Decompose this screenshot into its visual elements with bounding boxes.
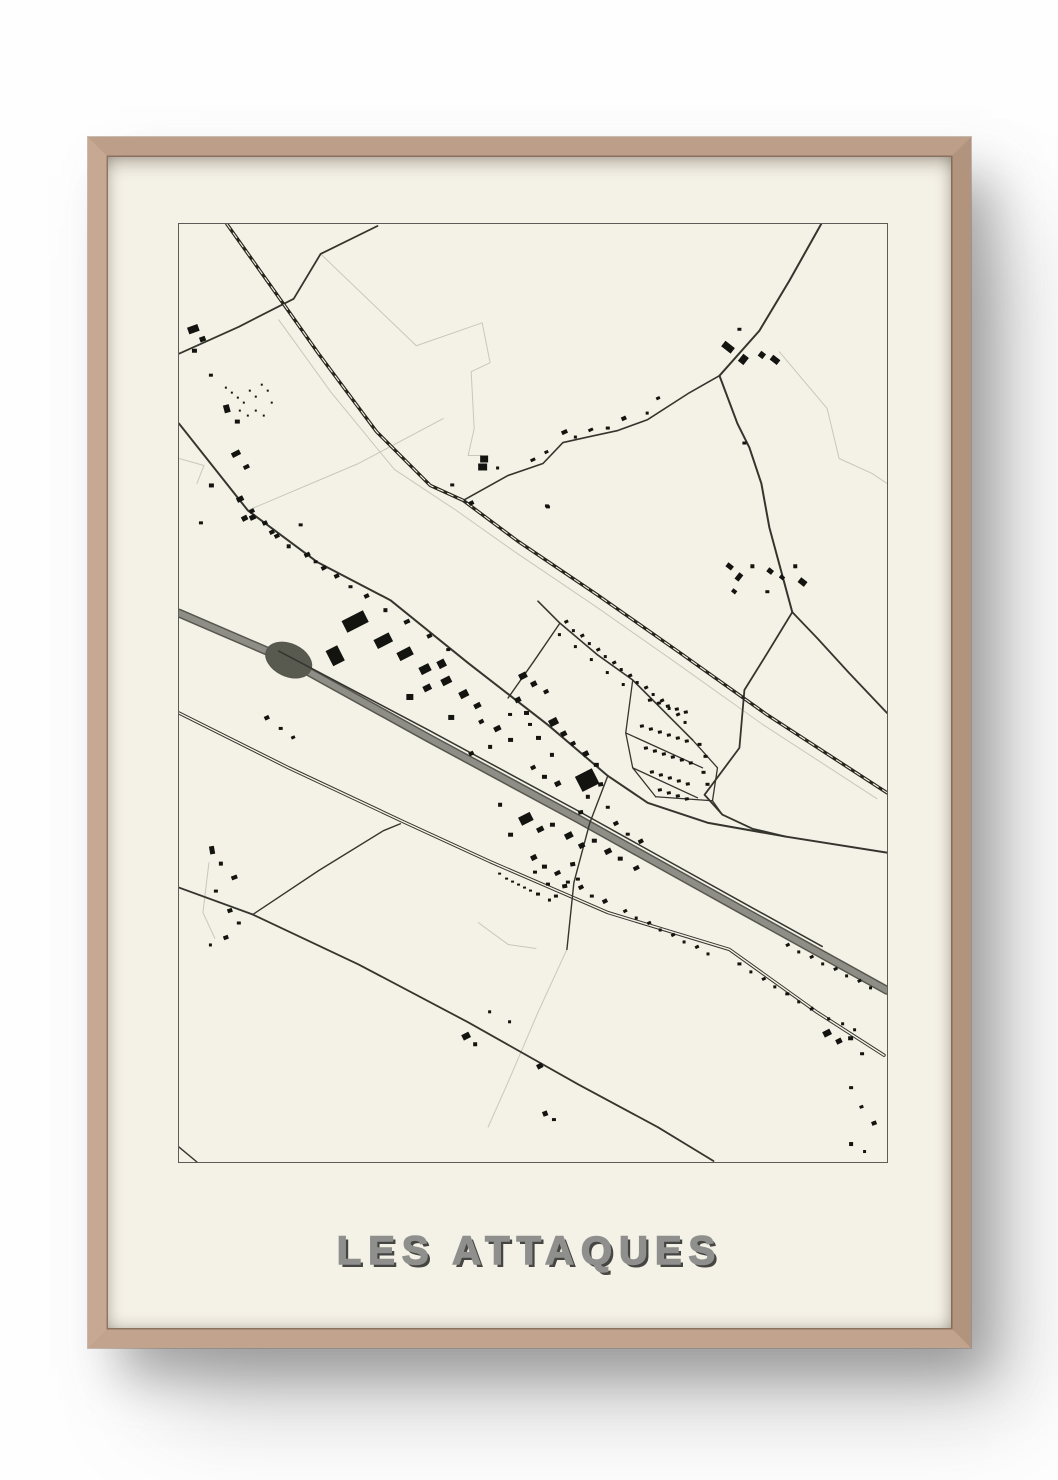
road [179,226,377,354]
building [530,680,538,687]
building [440,675,452,686]
building [562,884,568,889]
building [580,633,585,637]
railway [227,224,887,793]
building [725,562,734,570]
building [458,689,469,699]
building [508,738,513,742]
building [586,795,590,799]
building [406,694,413,700]
map-svg [179,224,887,1162]
building [606,806,610,809]
building [255,396,257,398]
building [649,727,653,731]
building [349,585,353,588]
building [735,572,744,581]
building [403,619,410,625]
building [529,890,532,892]
wall: LES ATTAQUES [0,0,1058,1480]
building [742,442,746,445]
building [243,464,250,470]
building [498,803,502,807]
building [231,449,241,458]
building [622,683,625,686]
building [613,820,619,826]
building [530,457,536,462]
building [192,349,197,353]
building [821,962,824,965]
building [473,1042,477,1046]
poster: LES ATTAQUES [108,157,951,1328]
building [223,935,229,940]
building [493,725,501,733]
building [223,404,231,413]
building [227,908,233,913]
building [676,794,680,798]
building [255,410,257,412]
building [279,727,283,730]
building [542,1110,548,1116]
building [841,1022,844,1025]
building [667,791,671,795]
building [561,429,568,435]
building [214,890,218,893]
building [684,710,688,714]
building [590,895,594,898]
building [650,770,654,774]
building [704,755,708,758]
building [271,402,273,404]
road [719,224,821,376]
building [524,711,529,715]
building [620,668,623,671]
building [261,384,263,386]
building [702,771,706,774]
building [299,523,303,526]
building [676,712,681,716]
building [550,753,554,757]
poster-title: LES ATTAQUES [108,1229,951,1274]
road [693,740,718,801]
field-boundary-line [248,419,443,511]
building [517,884,520,886]
map-container [178,223,888,1163]
building [314,560,318,563]
building [658,788,662,792]
building [545,504,549,507]
building [809,955,814,959]
building [683,940,686,943]
building [594,763,599,767]
building [827,1017,830,1020]
building [758,351,766,359]
building [671,755,675,759]
building [606,671,609,674]
building [658,730,662,734]
building [604,655,607,658]
building [231,875,238,881]
building [648,698,652,702]
building [652,693,655,696]
building [461,1032,471,1041]
road [538,601,693,740]
building [231,392,233,394]
building [450,483,454,486]
building [668,776,672,780]
building [770,355,781,365]
building [247,415,249,417]
building [662,752,666,756]
building [533,871,537,874]
building [685,797,689,801]
building [871,1120,877,1125]
building [869,986,872,989]
building [558,633,561,636]
building [237,922,241,925]
building [582,750,590,757]
road [508,623,560,698]
building [845,974,848,977]
building [518,812,534,826]
building [737,328,741,331]
building [731,588,737,594]
building [750,564,754,568]
building [267,390,269,392]
building [574,645,577,648]
building [239,410,241,412]
building [849,1142,853,1146]
building [209,846,215,855]
building [199,521,203,524]
building [396,646,413,661]
building [623,909,628,913]
building [564,831,574,840]
road [253,915,714,1161]
double-road-casing [179,713,884,1055]
building [241,515,249,522]
building [552,1118,556,1121]
building [243,402,245,404]
building [548,899,551,902]
building [326,645,345,666]
building [633,865,640,871]
building [588,427,594,432]
building [638,838,644,844]
building [721,341,735,354]
building [685,739,689,743]
building [578,810,584,815]
building [707,952,710,955]
building [249,508,255,514]
building [680,758,684,762]
building [749,970,752,973]
building [564,619,569,623]
building [592,839,597,843]
building [505,878,508,880]
building [606,427,610,430]
building [209,374,213,377]
building [859,1105,864,1109]
building [835,1038,843,1045]
building [219,862,223,866]
building [383,608,387,612]
building [646,412,649,415]
building [363,593,369,599]
building [488,745,492,749]
building [598,782,604,787]
railway-dashes [227,224,887,793]
building [822,1029,832,1038]
building [677,779,681,783]
building [550,823,555,827]
building [863,1150,866,1153]
building [342,610,369,632]
building [797,1000,800,1003]
building [264,715,270,721]
building [590,658,593,661]
building [572,629,575,632]
building [566,881,570,884]
building [695,945,700,949]
road [253,824,401,915]
building [570,862,576,867]
road [792,612,887,713]
building [675,707,679,711]
building [640,724,644,728]
building [448,715,454,720]
building [237,397,239,399]
building [418,663,431,675]
road [179,424,887,853]
building [676,736,680,740]
building [656,396,661,400]
building [644,746,648,750]
building [235,420,240,424]
building [635,917,638,920]
building [578,884,584,890]
building [785,943,790,947]
building [446,648,450,651]
building [225,387,227,389]
building [686,782,690,786]
building [536,893,540,896]
building [530,765,536,771]
building [576,878,580,881]
building [249,390,251,392]
building [659,773,663,777]
building [287,544,291,548]
building [659,928,662,931]
building [209,483,214,487]
building [528,723,532,726]
building [793,564,797,568]
building [574,436,577,439]
building [698,743,702,746]
building [575,768,600,792]
building [596,647,601,651]
building [653,749,657,753]
field-boundary-line [478,923,536,949]
building [536,826,544,834]
building [785,992,789,995]
building [523,887,526,889]
road [179,1147,197,1162]
building [848,1036,853,1040]
building [291,735,296,739]
building [511,881,514,883]
building [542,775,547,779]
building [618,857,623,861]
building [514,696,522,703]
field-boundary-line [179,459,204,484]
building [536,736,541,740]
building [860,1052,864,1055]
building [508,713,512,716]
building [508,1020,511,1023]
building [530,854,538,861]
building [612,660,617,664]
building [436,658,447,669]
building [508,833,513,837]
building [667,733,671,737]
building [765,590,769,593]
pond [260,635,317,684]
building [488,1010,491,1013]
building [797,950,800,953]
building [737,962,741,965]
building [554,895,558,898]
building [554,780,562,787]
building [626,833,630,836]
building [706,783,710,786]
building [684,721,687,724]
building [657,701,661,705]
building [602,898,608,904]
field-boundary-line [321,254,491,456]
field-boundary-line [488,949,567,1127]
building [473,702,481,710]
building [849,1086,853,1089]
building [738,354,749,365]
building [773,985,776,988]
building [798,577,808,587]
building [498,873,501,875]
building [478,719,484,725]
building [422,683,432,692]
building [496,466,499,469]
building [544,450,549,454]
building [644,685,649,689]
field-boundary-line [779,352,887,484]
building [263,415,265,417]
building [636,681,639,684]
road [463,376,719,501]
building [621,415,627,421]
building [480,456,488,463]
building [478,463,487,470]
building [209,943,212,946]
building [588,642,591,645]
building [373,632,393,649]
building [542,865,547,869]
building [546,883,550,886]
building [187,324,200,334]
poster-frame: LES ATTAQUES [88,137,971,1348]
building [853,1028,856,1031]
building [766,567,774,575]
building [543,689,549,695]
building [604,847,612,855]
building [554,870,561,876]
